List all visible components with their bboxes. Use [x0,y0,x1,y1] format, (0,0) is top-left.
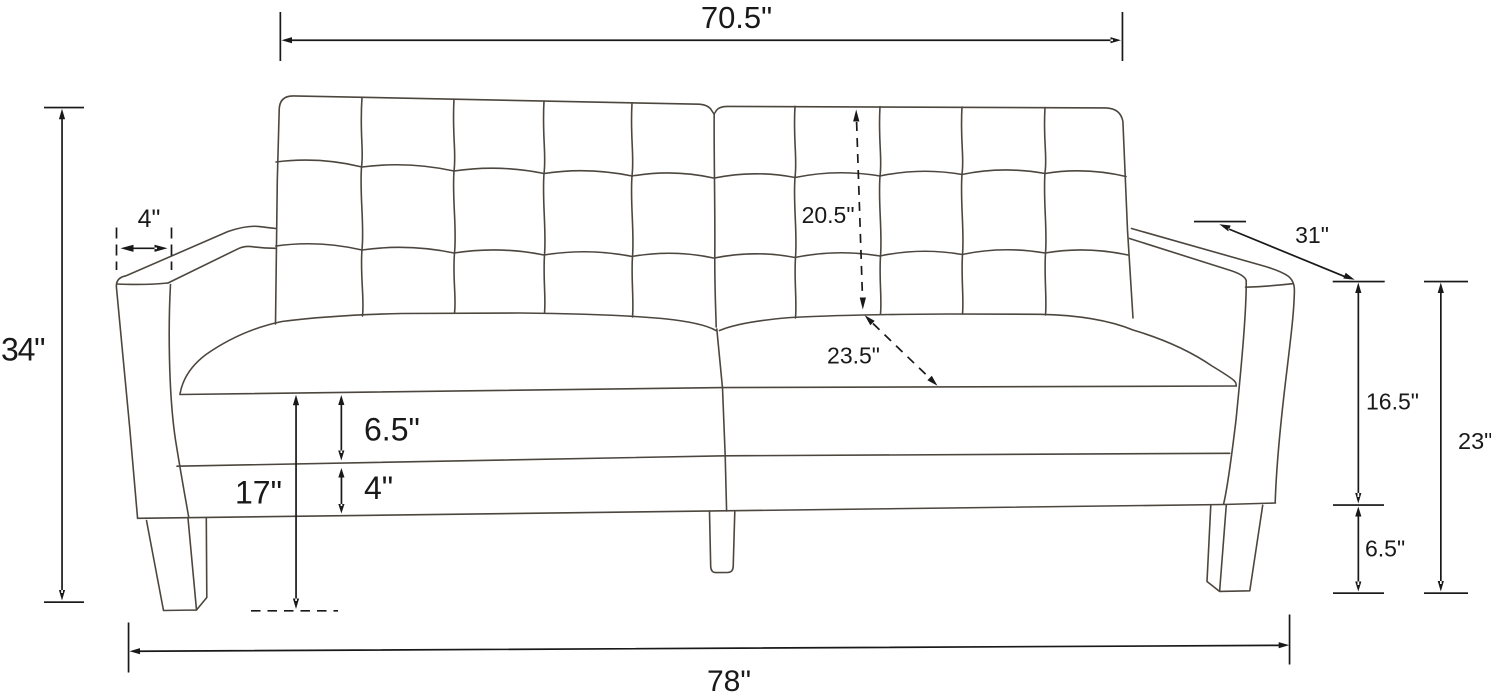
svg-text:70.5": 70.5" [701,0,772,35]
svg-text:6.5": 6.5" [1365,536,1405,562]
svg-text:17": 17" [235,475,282,511]
svg-text:4": 4" [364,470,393,506]
svg-text:4": 4" [138,205,161,233]
svg-text:23": 23" [1458,428,1491,454]
svg-text:20.5": 20.5" [802,202,855,228]
svg-text:78": 78" [707,665,751,698]
svg-text:23.5": 23.5" [827,343,880,369]
svg-text:31": 31" [1295,222,1329,248]
svg-text:6.5": 6.5" [364,412,420,448]
svg-text:34": 34" [1,332,46,368]
svg-text:16.5": 16.5" [1366,389,1419,415]
